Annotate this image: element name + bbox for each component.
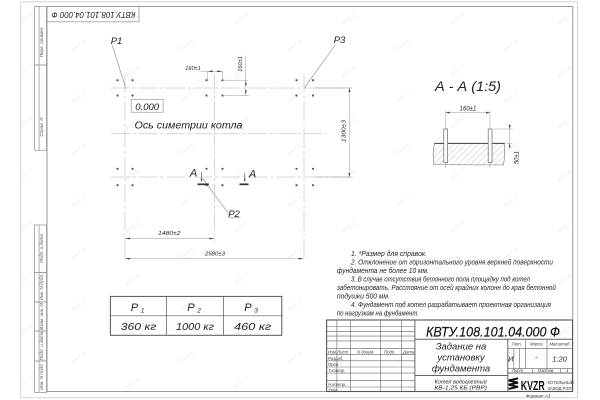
- svg-text:И: И: [508, 355, 514, 364]
- svg-text:1480±2: 1480±2: [158, 231, 181, 237]
- svg-text:Инв. N дубл.: Инв. N дубл.: [39, 274, 44, 301]
- svg-text:Разраб.: Разраб.: [328, 356, 344, 361]
- svg-text:KVZR: KVZR: [521, 379, 545, 393]
- svg-text:P1: P1: [111, 36, 123, 47]
- svg-text:4. Фундамент под котел разраба: 4. Фундамент под котел разрабатывает про…: [351, 301, 551, 309]
- svg-text:1:20: 1:20: [552, 355, 567, 364]
- svg-text:Пров.: Пров.: [328, 362, 339, 367]
- svg-text:фундамента не более 10 мм.: фундамента не более 10 мм.: [337, 267, 429, 275]
- svg-text:установку: установку: [436, 353, 486, 364]
- svg-text:1000 кг: 1000 кг: [176, 321, 214, 333]
- svg-text:КВ-1,25 КБ (РВР): КВ-1,25 КБ (РВР): [434, 385, 487, 391]
- svg-text:Листов: Листов: [537, 368, 554, 373]
- svg-text:160±1: 160±1: [185, 66, 200, 72]
- svg-text:A: A: [248, 169, 256, 181]
- svg-text:Утв.: Утв.: [328, 387, 338, 392]
- svg-text:2. Отклонение от горизонтально: 2. Отклонение от горизонтального уровня …: [350, 259, 553, 267]
- svg-text:Инв. N подл.: Инв. N подл.: [39, 363, 44, 390]
- svg-text:по нагрузкам на фундамент.: по нагрузкам на фундамент.: [337, 309, 419, 317]
- svg-text:Масса: Масса: [530, 342, 543, 347]
- svg-text:Перв. примен.: Перв. примен.: [39, 27, 44, 58]
- svg-text:3. В случае отсутствия бетонно: 3. В случае отсутствия бетонного пола пл…: [351, 276, 530, 284]
- svg-text:A: A: [189, 168, 197, 180]
- svg-text:460 кг: 460 кг: [234, 321, 271, 333]
- svg-text:Котел водогрейный: Котел водогрейный: [435, 378, 487, 385]
- svg-text:А - А (1:5): А - А (1:5): [434, 79, 501, 94]
- svg-text:160±1: 160±1: [238, 56, 244, 71]
- svg-text:забетонировать. Расстояние от: забетонировать. Расстояние от осей крайн…: [336, 284, 556, 292]
- svg-text:Подп. и дата: Подп. и дата: [39, 331, 44, 360]
- svg-text:Изм.Лист: Изм.Лист: [328, 350, 349, 355]
- svg-text:2580±3: 2580±3: [204, 252, 226, 258]
- svg-text:Ось симетрии котла: Ось симетрии котла: [135, 121, 244, 132]
- svg-text:P2: P2: [228, 209, 240, 220]
- svg-text:Лит.: Лит.: [511, 342, 522, 347]
- svg-text:0.000: 0.000: [135, 102, 159, 113]
- svg-text:Подп.: Подп.: [384, 350, 395, 355]
- svg-text:1300±3: 1300±3: [341, 119, 347, 142]
- svg-text:ЗАВОД РЭП: ЗАВОД РЭП: [548, 386, 572, 391]
- svg-text:50±1: 50±1: [514, 151, 520, 164]
- svg-text:Т.контр.: Т.контр.: [328, 368, 345, 373]
- svg-text:P3: P3: [334, 35, 346, 46]
- svg-text:КВТУ.108.101.04.000 Ф: КВТУ.108.101.04.000 Ф: [426, 324, 560, 339]
- svg-text:Формат А3: Формат А3: [526, 393, 551, 398]
- svg-text:160±1: 160±1: [460, 107, 477, 113]
- svg-text:фундамента: фундамента: [432, 364, 490, 375]
- svg-text:Подп. и дата: Подп. и дата: [39, 234, 44, 263]
- svg-text:360 кг: 360 кг: [121, 321, 157, 333]
- svg-text:Лист: Лист: [511, 368, 523, 373]
- svg-text:подушки 500 мм.: подушки 500 мм.: [337, 292, 390, 300]
- svg-text:Н.контр.: Н.контр.: [328, 382, 346, 387]
- svg-text:N докум.: N докум.: [357, 350, 374, 355]
- svg-text:Справ. N: Справ. N: [39, 117, 44, 137]
- svg-text:КОТЕЛЬНЫЙ: КОТЕЛЬНЫЙ: [548, 380, 574, 385]
- svg-text:КВТУ.108.101.04.000 Ф: КВТУ.108.101.04.000 Ф: [51, 10, 135, 20]
- svg-text:Дата: Дата: [402, 350, 415, 355]
- svg-text:1. *Размер для справок.: 1. *Размер для справок.: [351, 250, 427, 258]
- svg-text:Взам. инв. N: Взам. инв. N: [39, 302, 44, 329]
- svg-text:Задание на: Задание на: [436, 342, 487, 353]
- svg-text:Масштаб: Масштаб: [549, 342, 570, 347]
